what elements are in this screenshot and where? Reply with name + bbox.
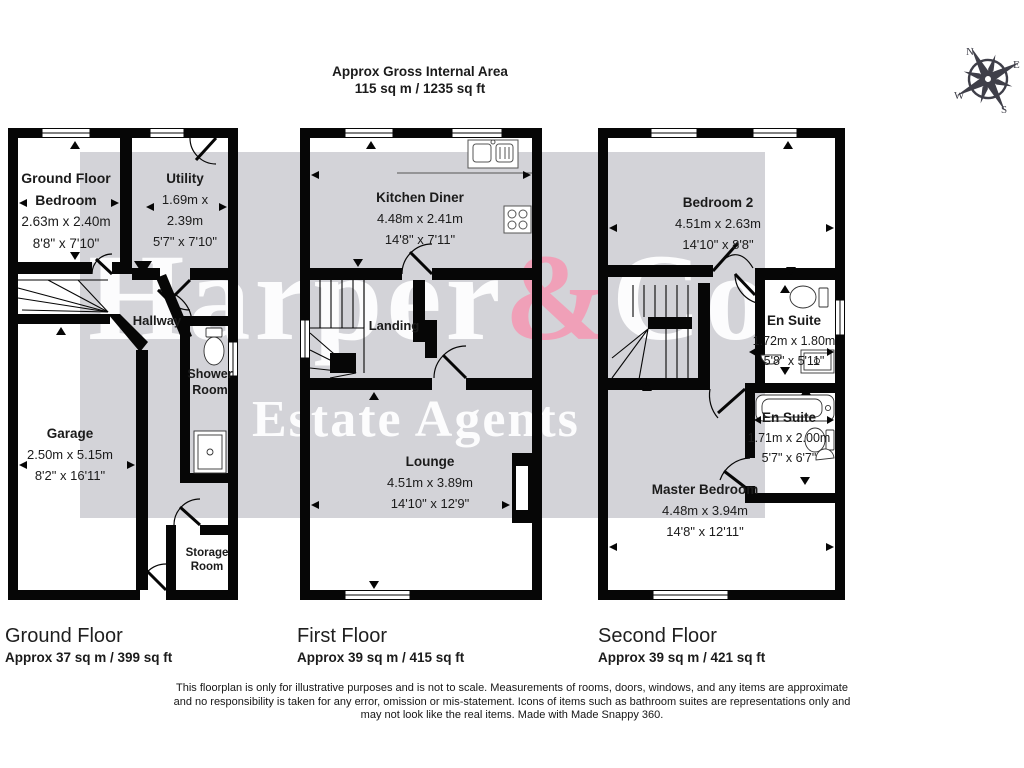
compass-w-label: W	[954, 90, 965, 102]
room-label-ground-floor-bedroom: Ground Floor Bedroom 2.63m x 2.40m 8'8" …	[14, 167, 118, 255]
room-name: Utility	[143, 168, 227, 189]
room-label-storage-room: Storage Room	[182, 546, 232, 574]
room-name: Hallway	[124, 313, 190, 329]
room-label-master-bedroom: Master Bedroom 4.48m x 3.94m 14'8" x 12'…	[625, 479, 785, 542]
floor-name: Second Floor	[598, 624, 765, 648]
room-dim-metric: 2.63m x 2.40m	[14, 211, 118, 233]
room-name: En Suite	[746, 311, 842, 331]
disclaimer-text: This floorplan is only for illustrative …	[0, 682, 1024, 723]
floor-caption-first: First Floor Approx 39 sq m / 415 sq ft	[297, 624, 464, 665]
room-label-hallway: Hallway	[124, 313, 190, 329]
floor-caption-ground: Ground Floor Approx 37 sq m / 399 sq ft	[5, 624, 172, 665]
room-dim-metric: 1.72m x 1.80m	[746, 331, 842, 351]
disclaimer-line3: may not look like the real items. Made w…	[0, 709, 1024, 723]
room-dim-metric: 4.48m x 3.94m	[625, 500, 785, 521]
room-dim-metric: 4.48m x 2.41m	[345, 208, 495, 229]
title-line1: Approx Gross Internal Area	[270, 63, 570, 80]
compass-rose-icon: N E S W	[950, 41, 1024, 117]
disclaimer-line1: This floorplan is only for illustrative …	[0, 682, 1024, 696]
room-label-shower-room: Shower Room	[184, 366, 236, 398]
room-label-lounge: Lounge 4.51m x 3.89m 14'10" x 12'9"	[355, 451, 505, 514]
room-dim-metric: 4.51m x 3.89m	[355, 472, 505, 493]
room-name: Bedroom 2	[640, 192, 796, 213]
floor-area: Approx 39 sq m / 415 sq ft	[297, 650, 464, 665]
room-dim-metric: 1.71m x 2.00m	[741, 428, 837, 448]
room-dim-imperial: 5'8" x 5'11"	[746, 351, 842, 371]
room-dim-imperial: 14'8" x 7'11"	[345, 229, 495, 250]
room-dim-imperial: 5'7" x 7'10"	[143, 231, 227, 252]
room-name: Shower Room	[184, 366, 236, 398]
room-dim-imperial: 8'2" x 16'11"	[14, 465, 126, 486]
room-label-bedroom-2: Bedroom 2 4.51m x 2.63m 14'10" x 8'8"	[640, 192, 796, 255]
floor-area: Approx 37 sq m / 399 sq ft	[5, 650, 172, 665]
room-dim-imperial: 14'10" x 12'9"	[355, 493, 505, 514]
room-name: En Suite	[741, 408, 837, 428]
floor-name: Ground Floor	[5, 624, 172, 648]
disclaimer-line2: and no responsibility is taken for any e…	[0, 696, 1024, 710]
room-dim-imperial: 14'8" x 12'11"	[625, 521, 785, 542]
room-name: Kitchen Diner	[345, 187, 495, 208]
compass-s-label: S	[1001, 104, 1007, 116]
floor-area: Approx 39 sq m / 421 sq ft	[598, 650, 765, 665]
room-label-garage: Garage 2.50m x 5.15m 8'2" x 16'11"	[14, 423, 126, 486]
room-label-landing: Landing	[361, 318, 427, 334]
room-dim-imperial: 8'8" x 7'10"	[14, 233, 118, 255]
room-name: Garage	[14, 423, 126, 444]
room-label-en-suite-1: En Suite 1.72m x 1.80m 5'8" x 5'11"	[746, 311, 842, 371]
floor-name: First Floor	[297, 624, 464, 648]
room-name: Master Bedroom	[625, 479, 785, 500]
page-title: Approx Gross Internal Area 115 sq m / 12…	[270, 63, 570, 97]
compass-e-label: E	[1013, 59, 1020, 71]
room-label-en-suite-2: En Suite 1.71m x 2.00m 5'7" x 6'7"	[741, 408, 837, 468]
room-name: Landing	[361, 318, 427, 334]
room-dim-metric: 4.51m x 2.63m	[640, 213, 796, 234]
room-dim-metric: 1.69m x 2.39m	[143, 189, 227, 231]
room-name: Lounge	[355, 451, 505, 472]
room-label-utility: Utility 1.69m x 2.39m 5'7" x 7'10"	[143, 168, 227, 252]
room-name: Storage Room	[182, 546, 232, 574]
compass-n-label: N	[966, 46, 974, 58]
title-line2: 115 sq m / 1235 sq ft	[270, 80, 570, 97]
room-label-kitchen-diner: Kitchen Diner 4.48m x 2.41m 14'8" x 7'11…	[345, 187, 495, 250]
room-dim-imperial: 5'7" x 6'7"	[741, 448, 837, 468]
room-name: Ground Floor Bedroom	[14, 167, 118, 211]
room-dim-imperial: 14'10" x 8'8"	[640, 234, 796, 255]
room-dim-metric: 2.50m x 5.15m	[14, 444, 126, 465]
floor-caption-second: Second Floor Approx 39 sq m / 421 sq ft	[598, 624, 765, 665]
